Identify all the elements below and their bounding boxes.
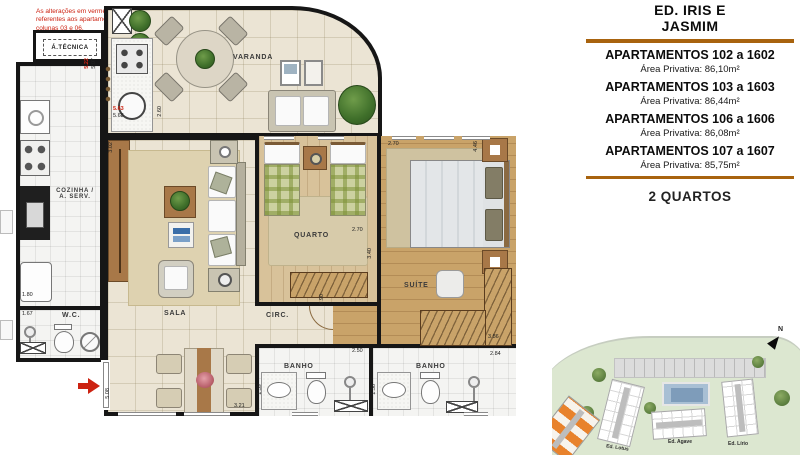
room-label-varanda: VARANDA [233, 54, 273, 61]
table-centerpiece-plant [195, 49, 215, 69]
nightstand [303, 146, 327, 170]
toilet-tank [54, 324, 72, 330]
dim-label: 1.38 [372, 384, 378, 395]
room-label-atecnica: Á.TÉCNICA [51, 45, 88, 51]
parking-strip [614, 358, 766, 378]
apartment-entry: APARTAMENTOS 106 a 1606 Área Privativa: … [584, 112, 796, 139]
dim-label: 0.90 [320, 294, 326, 305]
flower-centerpiece [196, 372, 214, 388]
entrance-door [103, 362, 109, 408]
room-label-quarto: QUARTO [294, 232, 329, 239]
single-bed [330, 164, 366, 216]
accent-rule [586, 39, 794, 43]
compass-north-label: N [778, 326, 783, 333]
plant-pot [129, 10, 151, 32]
oval-sink [382, 382, 406, 398]
dim-label: 4.46 [474, 141, 480, 152]
building-title-line1: ED. IRIS E [584, 2, 796, 18]
apartment-entry: APARTAMENTOS 107 a 1607 Área Privativa: … [584, 144, 796, 171]
neighbor-unit-stub [0, 320, 13, 340]
dim-label: 1.67 [22, 312, 33, 318]
room-label-banho-1: BANHO [284, 363, 314, 370]
shower-head [344, 376, 356, 388]
room-label-wc: W.C. [62, 312, 80, 319]
apartment-area: Área Privativa: 86,08m² [584, 128, 796, 139]
apartment-area: Área Privativa: 86,44m² [584, 96, 796, 107]
bush [752, 356, 764, 368]
shower-head [24, 326, 36, 338]
oval-sink [267, 382, 291, 398]
window [464, 412, 488, 416]
apartment-entry: APARTAMENTOS 103 a 1603 Área Privativa: … [584, 80, 796, 107]
building-lirio [721, 378, 759, 437]
cooktop [116, 44, 148, 74]
sideboard [108, 140, 130, 282]
suite-entry-floor [333, 306, 377, 348]
floorplan-sheet: As alterações em vermelho são referentes… [0, 0, 800, 455]
apartment-name: APARTAMENTOS 103 a 1603 [584, 80, 796, 94]
apartment-area: Área Privativa: 86,10m² [584, 64, 796, 75]
dim-label: 1.39 [258, 384, 264, 395]
building-label-agave: Ed. Agave [668, 439, 692, 445]
window [264, 136, 294, 140]
washing-machine [20, 100, 50, 134]
apartment-name: APARTAMENTOS 106 a 1606 [584, 112, 796, 126]
toilet-bowl [307, 380, 326, 404]
window [184, 412, 230, 416]
dim-label: 5.63 [113, 107, 124, 113]
info-panel: ED. IRIS E JASMIM APARTAMENTOS 102 a 160… [584, 2, 796, 204]
dim-label: 3.40 [368, 248, 374, 259]
large-plant [338, 85, 376, 125]
dim-label: 5.07 [92, 58, 98, 69]
toilet-bowl [421, 380, 440, 404]
nightstand [482, 138, 508, 162]
building-agave [651, 408, 707, 440]
floor-mat [20, 342, 46, 354]
wall-picture [304, 60, 323, 86]
pouf [436, 270, 464, 298]
apartment-name: APARTAMENTOS 102 a 1602 [584, 48, 796, 62]
wall-picture [280, 60, 301, 86]
entrance-arrow [78, 378, 100, 394]
dim-label: 2.70 [388, 142, 399, 148]
dim-label: 5.68 [113, 114, 124, 120]
dim-label: 2.84 [490, 352, 501, 358]
stove [20, 140, 50, 176]
side-table-books [168, 222, 194, 248]
bush [592, 368, 606, 382]
pool [662, 382, 710, 406]
double-bed [410, 160, 510, 248]
dining-chair [226, 354, 252, 374]
building-label-lirio: Ed. Lírio [728, 441, 748, 447]
closet-horizontal [420, 310, 486, 346]
site-plan: Ed. Lotus Ed. Agave Ed. Lírio N [552, 298, 800, 455]
shower-head [468, 376, 480, 388]
dim-label: 3.21 [234, 404, 245, 410]
window [118, 412, 176, 416]
window [292, 412, 318, 416]
armchair [158, 260, 194, 298]
apartment-area: Área Privativa: 85,75m² [584, 160, 796, 171]
room-label-sala: SALA [164, 310, 186, 317]
building-title-line2: JASMIM [584, 18, 796, 34]
side-table [210, 140, 238, 164]
dim-label: 3.86 [488, 335, 499, 341]
dim-label: 1.80 [22, 293, 33, 299]
dining-chair [156, 354, 182, 374]
room-label-cozinha: COZINHA / A. SERV. [46, 188, 104, 200]
window [462, 136, 490, 140]
neighbor-unit-stub [0, 210, 13, 234]
toilet-tank [420, 372, 440, 379]
single-bed [264, 164, 300, 216]
wc-round-sink [80, 332, 100, 352]
bedroom-count: 2 QUARTOS [584, 189, 796, 204]
toilet-tank [306, 372, 326, 379]
single-bed-pillow [330, 142, 366, 164]
dim-label: 2.70 [352, 228, 363, 234]
window [318, 136, 344, 140]
room-label-banho-2: BANHO [416, 363, 446, 370]
side-table [208, 268, 240, 292]
dim-label: 5.22 [85, 58, 91, 69]
dim-label: 2.60 [158, 106, 164, 117]
bush [774, 390, 790, 406]
shower-stem [473, 388, 475, 402]
sofa-backrest [236, 162, 246, 266]
accent-rule [586, 176, 794, 180]
bath-mat [334, 400, 368, 412]
window [424, 136, 454, 140]
room-label-circ: CIRC. [266, 312, 289, 319]
single-bed-pillow [264, 142, 300, 164]
window [392, 136, 416, 140]
toilet-bowl [54, 331, 74, 353]
dining-chair [156, 388, 182, 408]
varanda-sofa [268, 90, 336, 132]
dim-label: 3.02 [109, 142, 115, 153]
dim-label: 5.08 [106, 388, 112, 399]
dresser [290, 272, 368, 298]
coffee-table-plant [170, 191, 190, 211]
dim-label: 2.50 [352, 349, 363, 355]
sofa-cushion [208, 200, 236, 232]
apartment-entry: APARTAMENTOS 102 a 1602 Área Privativa: … [584, 48, 796, 75]
room-label-suite: SUÍTE [404, 282, 429, 289]
apartment-name: APARTAMENTOS 107 a 1607 [584, 144, 796, 158]
